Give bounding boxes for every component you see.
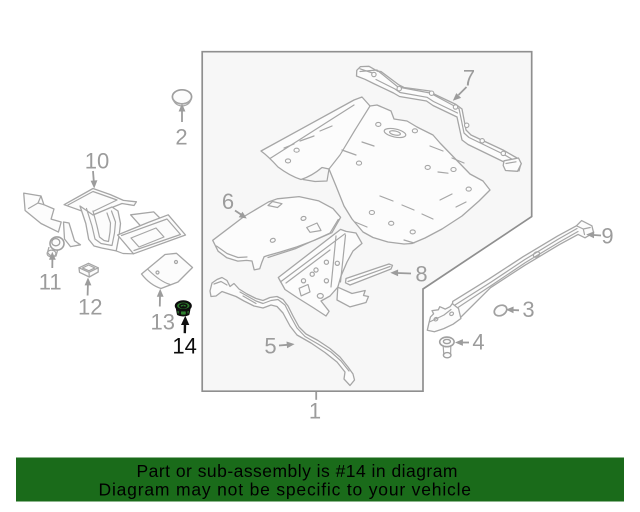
svg-text:11: 11 [39, 270, 62, 295]
svg-text:3: 3 [522, 297, 534, 322]
svg-text:10: 10 [85, 148, 109, 173]
svg-text:6: 6 [222, 189, 234, 214]
svg-text:2: 2 [175, 124, 187, 149]
svg-text:8: 8 [415, 262, 427, 287]
svg-text:1: 1 [309, 399, 321, 424]
svg-text:Part or sub-assembly is #14 in: Part or sub-assembly is #14 in diagram [137, 461, 458, 481]
svg-text:9: 9 [601, 224, 613, 249]
svg-text:Diagram may not be specific to: Diagram may not be specific to your vehi… [99, 480, 472, 500]
svg-text:12: 12 [78, 294, 102, 319]
svg-text:5: 5 [264, 334, 276, 359]
svg-text:7: 7 [463, 65, 475, 90]
svg-text:13: 13 [151, 309, 175, 334]
svg-text:4: 4 [472, 330, 484, 355]
svg-text:14: 14 [172, 334, 196, 359]
